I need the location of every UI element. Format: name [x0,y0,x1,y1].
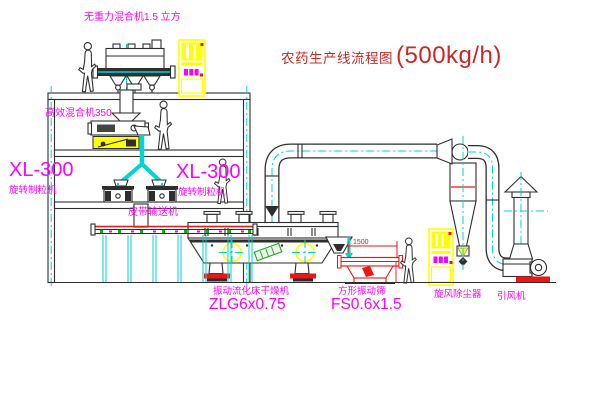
person-middle-floor [155,101,172,149]
label-granulator-right-name: 旋转制粒机 [178,188,226,198]
dimension-1500: 1500 [353,239,369,246]
cyclone-outlet [452,144,468,160]
granulator-left [102,183,134,202]
mixer-funnel [112,113,140,121]
fluid-bed-dryer [188,212,338,282]
inlet-diffuser [437,139,452,164]
induced-draft-fan [503,259,550,282]
dryer-pad-left [204,274,230,279]
drawing-title: 农药生产线流程图 (500kg/h) [281,42,502,70]
fan-casing [503,259,532,277]
title-capacity: (500kg/h) [396,42,502,70]
middle-floor-slab [55,150,244,157]
mixer-discharge-chute [120,90,133,113]
indicator-dot [201,43,204,46]
fan-base [516,277,550,283]
label-screen-model: FS0.6x1.5 [331,297,402,313]
fan-motor [531,260,547,276]
drawing-canvas: 农药生产线流程图 (500kg/h) 无重力混合机1.5 立方 高效混合机350… [0,0,600,403]
label-granulator-left-model: XL-300 [9,160,74,180]
person-top-floor [79,43,96,92]
stack-transition [510,244,533,259]
label-mid-mixer: 高效混合机350 [45,109,112,119]
control-cabinet-upper [179,40,205,96]
indicator-dot [450,261,453,264]
control-cabinet-lower [429,229,453,285]
label-fan: 引风机 [497,292,526,302]
label-granulator-right-model: XL-300 [176,162,241,182]
indicator-dot [200,74,203,77]
mixer-vent [152,40,161,49]
top-floor-slab [48,93,250,100]
exhaust-stack [504,172,548,268]
indicator-dot [449,232,452,235]
label-belt-conveyor: 皮带输送机 [128,208,178,218]
title-chinese: 农药生产线流程图 [281,47,393,70]
label-granulator-left-name: 旋转制粒机 [9,186,57,196]
label-cyclone: 旋风除尘器 [434,290,482,300]
label-dryer-model: ZLG6x0.75 [209,297,286,313]
mixer-body [106,49,164,70]
label-top-mixer: 无重力混合机1.5 立方 [84,13,181,23]
dryer-deck [190,240,336,243]
granulator-right [146,183,178,202]
dryer-pad-right [290,274,316,279]
conveyor-rollers [100,230,251,233]
